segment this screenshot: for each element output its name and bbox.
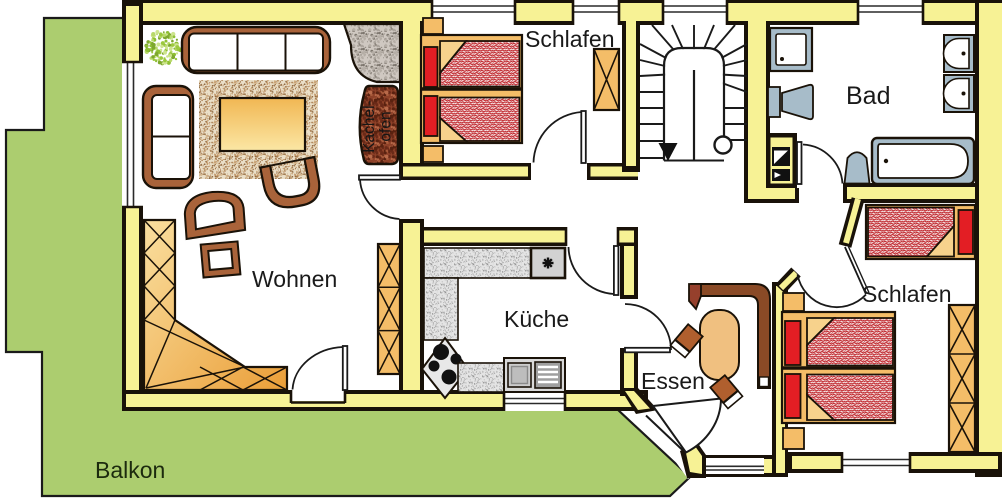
svg-text:Kachel-: Kachel- <box>361 100 378 153</box>
svg-text:Wohnen: Wohnen <box>252 266 337 292</box>
svg-text:ofen: ofen <box>378 111 395 141</box>
svg-text:Essen: Essen <box>641 368 705 394</box>
svg-text:Balkon: Balkon <box>95 457 165 483</box>
svg-text:Bad: Bad <box>846 82 890 110</box>
svg-text:Küche: Küche <box>504 306 569 332</box>
svg-text:Schlafen: Schlafen <box>525 26 615 52</box>
svg-text:Schlafen: Schlafen <box>862 281 952 307</box>
